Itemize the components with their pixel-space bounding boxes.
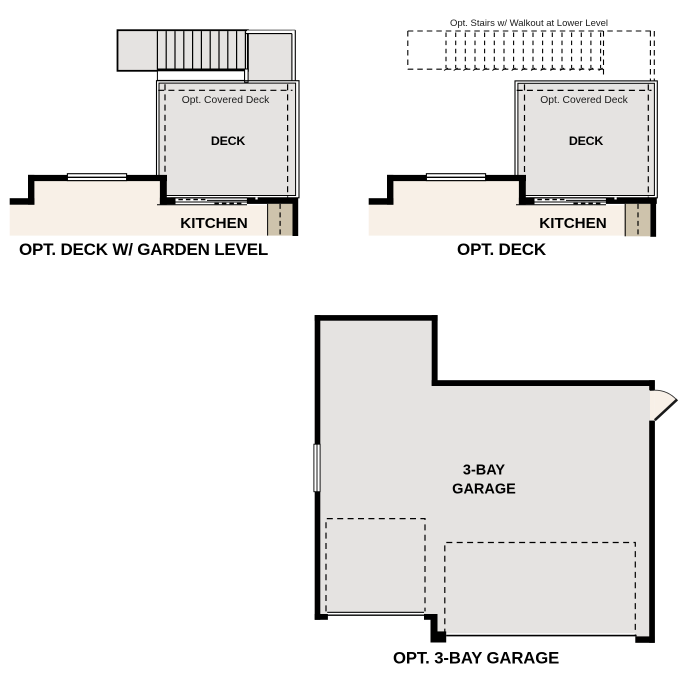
svg-text:3-BAY: 3-BAY xyxy=(463,463,506,479)
svg-text:Opt. Covered Deck: Opt. Covered Deck xyxy=(182,95,270,106)
svg-text:Opt. Covered Deck: Opt. Covered Deck xyxy=(540,95,628,106)
svg-text:OPT. DECK: OPT. DECK xyxy=(457,240,547,259)
svg-text:KITCHEN: KITCHEN xyxy=(180,215,248,232)
svg-text:Opt. Stairs w/ Walkout at Lowe: Opt. Stairs w/ Walkout at Lower Level xyxy=(450,18,608,29)
svg-text:GARAGE: GARAGE xyxy=(452,481,516,497)
svg-text:DECK: DECK xyxy=(569,134,604,148)
svg-text:DECK: DECK xyxy=(211,134,246,148)
svg-text:OPT. 3-BAY GARAGE: OPT. 3-BAY GARAGE xyxy=(393,648,559,667)
svg-text:KITCHEN: KITCHEN xyxy=(539,215,607,232)
svg-text:OPT. DECK W/ GARDEN LEVEL: OPT. DECK W/ GARDEN LEVEL xyxy=(19,240,268,259)
